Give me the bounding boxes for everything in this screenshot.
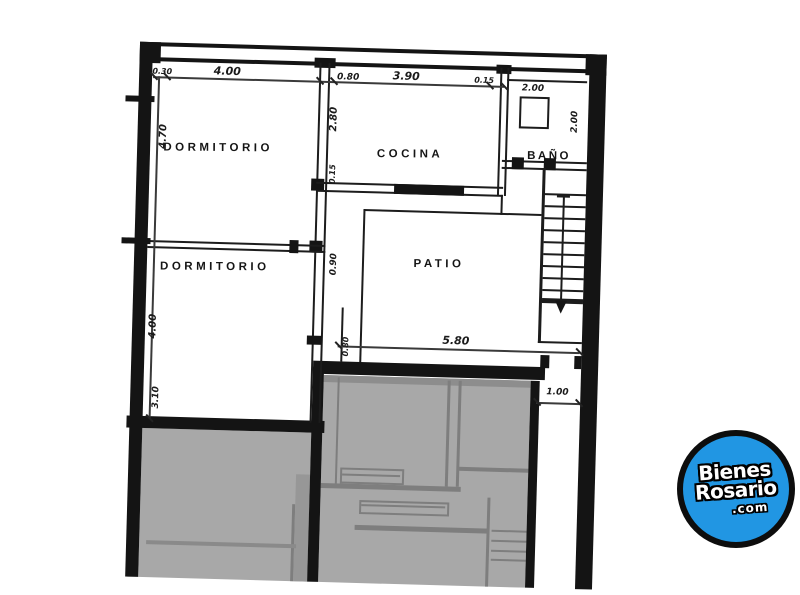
room-label-bano: BAÑO [527, 150, 571, 162]
masked-lower-unit-left [138, 428, 311, 582]
room-label-dormitorio-1: DORMITORIO [163, 142, 273, 155]
stairs-direction-arrow [555, 300, 567, 313]
stairs-direction-start [557, 194, 570, 197]
room-label-patio: PATIO [413, 258, 464, 270]
dimension-label: 0.90 [329, 253, 340, 275]
stair-tread [543, 265, 584, 268]
patio-boundary-top [363, 209, 541, 216]
wall-tick [512, 157, 524, 169]
dimension-label: 4.70 [158, 124, 170, 149]
dimension-label: 3.10 [151, 386, 162, 408]
wall-corner-topleft [140, 42, 162, 64]
dimension-label: 5.80 [442, 334, 469, 348]
dimension-label: 0.30 [152, 67, 172, 77]
dimension-label: 0.15 [328, 164, 338, 184]
wall-bano-top-inner [507, 79, 587, 83]
stairs-bottom-line [538, 341, 582, 344]
wall-junction [314, 58, 335, 69]
patio-boundary-connector [500, 195, 503, 215]
wall-outer-right [575, 54, 607, 589]
door-jamb [540, 355, 549, 368]
stair-tread [544, 241, 585, 244]
dimension-label: 2.80 [328, 107, 340, 132]
wall-tick [307, 335, 322, 344]
stairs-direction-line [560, 196, 565, 302]
door-jamb [574, 356, 581, 369]
wall-dormitorio-divider [147, 246, 325, 253]
dimension-line-exit [536, 402, 580, 405]
dimension-label: 4.00 [214, 64, 241, 78]
wall-cocina-bottom-solid [394, 184, 464, 196]
masked-window-symbol [359, 500, 449, 517]
wall-outer-top-line [140, 42, 607, 59]
patio-boundary-left [359, 209, 365, 362]
dimension-label: 0.80 [337, 72, 359, 83]
dimension-label: 0.80 [341, 337, 351, 357]
wall-tick [289, 240, 298, 253]
watermark-logo-text: Bienes Rosario .com [693, 460, 778, 519]
stair-tread [543, 253, 584, 256]
dimension-label: 4.00 [147, 314, 159, 339]
stair-tread [542, 289, 583, 292]
stair-tread [544, 229, 585, 232]
dimension-tick [125, 95, 154, 102]
stair-tread [543, 277, 584, 280]
stair-tread [545, 205, 586, 208]
room-label-cocina: COCINA [377, 148, 443, 160]
bano-skylight-symbol [519, 96, 550, 129]
logo-line-3: .com [722, 501, 778, 516]
stair-tread [544, 217, 585, 220]
room-label-dormitorio-2: DORMITORIO [160, 261, 270, 274]
dimension-label: 0.15 [474, 76, 494, 86]
dimension-label: 2.00 [522, 83, 544, 94]
dimension-label: 3.90 [392, 69, 419, 83]
watermark-logo: Bienes Rosario .com [677, 430, 795, 548]
dimension-label: 1.00 [546, 387, 568, 398]
dimension-tick [121, 237, 150, 244]
dimension-label: 2.00 [570, 111, 581, 133]
